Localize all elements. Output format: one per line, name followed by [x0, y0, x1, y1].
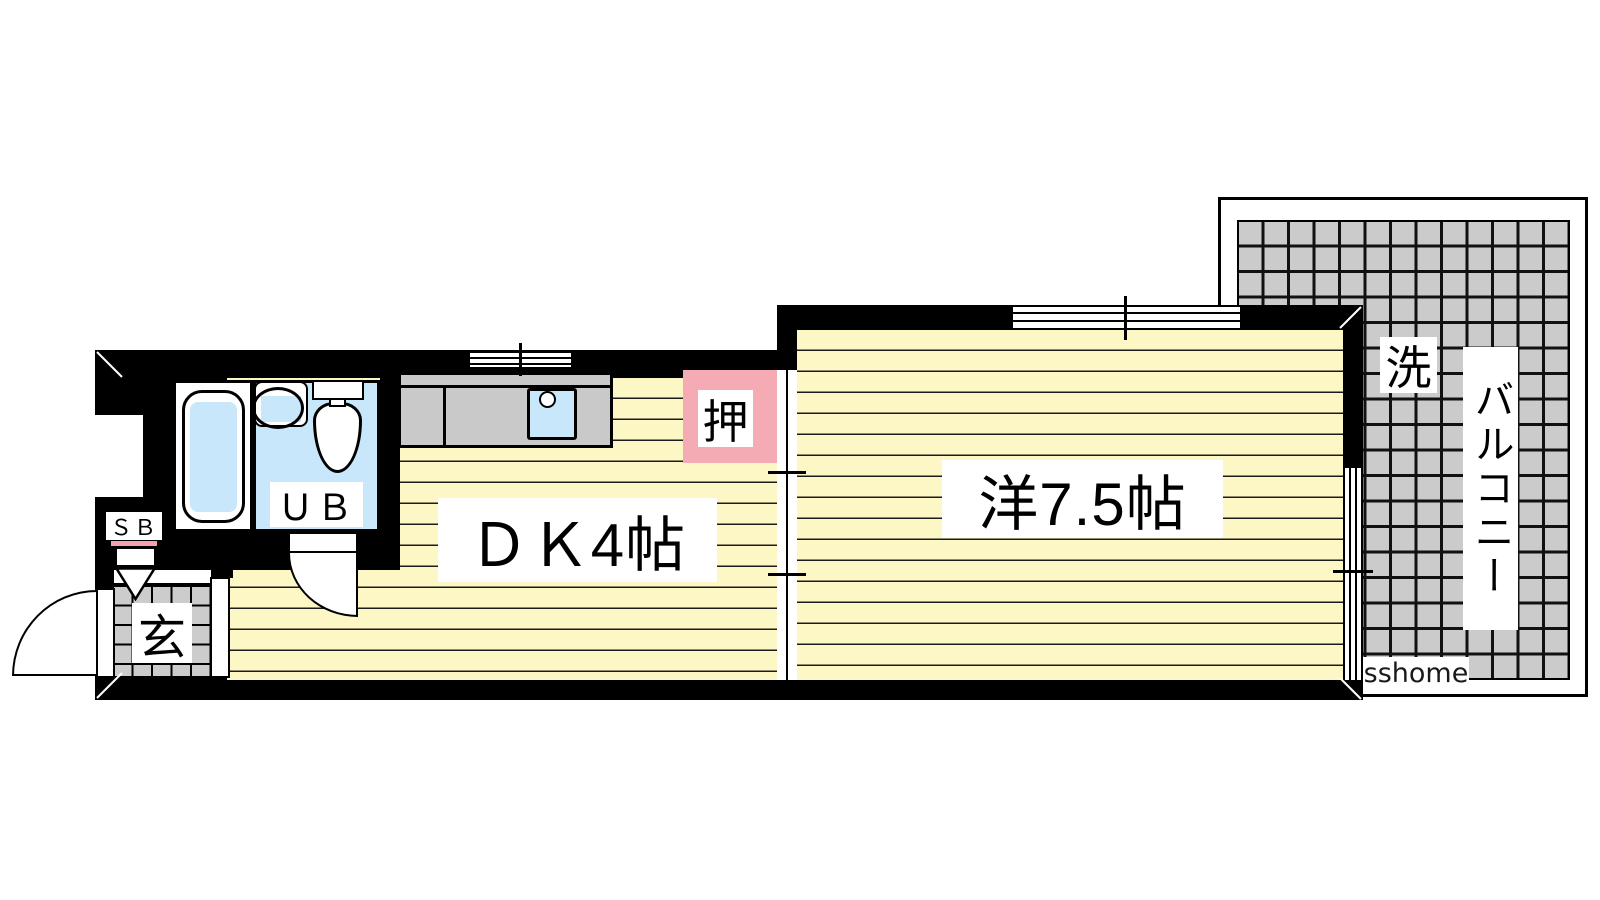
wall-segment [380, 378, 400, 570]
window-pane-line [1355, 468, 1357, 680]
counter-divider-line [443, 385, 446, 448]
window-center-tick [1333, 570, 1373, 573]
kitchen-counter [398, 372, 613, 448]
balcony-sliding-window [1343, 468, 1363, 680]
entrance-door-swing-arc [12, 590, 97, 676]
window-pane-line [1349, 468, 1351, 680]
dk-room-label: ＤＫ4帖 [438, 498, 717, 582]
balcony-label: バルコニー [1463, 347, 1518, 630]
western-room-label: 洋7.5帖 [942, 460, 1223, 538]
unit-bath-label: ＵＢ [270, 482, 363, 527]
floorplan-canvas: ＵＢ 押 洋7.5帖 ＤＫ4帖 玄 ＳＢ [0, 0, 1600, 900]
toilet-handle [329, 398, 346, 407]
shoe-box-accent-bar [110, 540, 158, 547]
sliding-door-partition [777, 370, 797, 680]
down-arrow-icon [115, 567, 156, 601]
entrance-label: 玄 [132, 603, 192, 663]
entrance-pillar [210, 577, 230, 678]
closet-label: 押 [698, 390, 753, 447]
toilet-tank [312, 380, 364, 400]
kitchen-faucet-icon [539, 391, 556, 408]
partition-tick [768, 573, 806, 576]
partition-tick [768, 471, 806, 474]
washbasin-bowl [252, 387, 304, 429]
window-center-tick [519, 343, 522, 376]
sliding-door-track-line [786, 370, 788, 680]
counter-edge-line [401, 385, 610, 388]
watermark-text: sshome [1363, 657, 1469, 690]
washer-label: 洗 [1380, 337, 1437, 393]
bathtub-water [190, 402, 237, 512]
shoe-box [115, 547, 156, 567]
ub-door-leaf [288, 532, 358, 553]
exterior-wall-notch [93, 415, 143, 497]
entrance-door-leaf [96, 588, 115, 678]
shoe-box-label: ＳＢ [106, 512, 162, 540]
window-center-tick [1124, 296, 1127, 340]
